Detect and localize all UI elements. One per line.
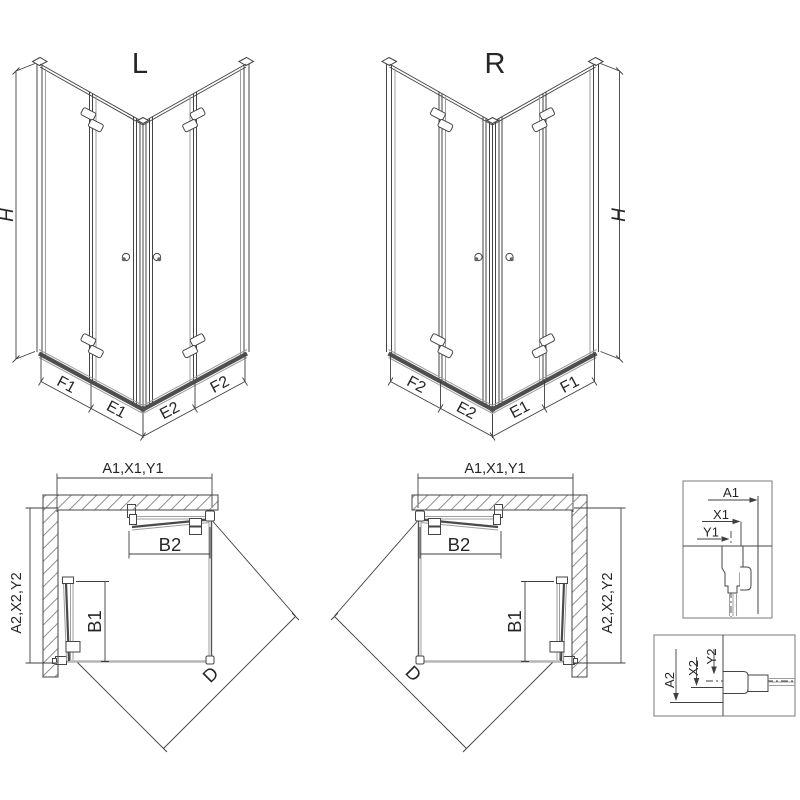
technical-drawing-canvas: L H F1 E1 E2 F2 R H F2 E2 E1 F1 A1,X1,Y1… bbox=[0, 0, 800, 800]
plan-left-side-label: A2,X2,Y2 bbox=[9, 572, 25, 633]
door-cap bbox=[63, 577, 74, 584]
d-dimension bbox=[78, 522, 300, 753]
shower-enclosure-drawing: L H F1 E1 E2 F2 R H F2 E2 E1 F1 A1,X1,Y1… bbox=[0, 0, 800, 800]
detail-x2-label: X2 bbox=[686, 660, 701, 676]
detail-box-a1x1y1 bbox=[683, 481, 772, 618]
plan-left-b2-label: B2 bbox=[159, 534, 182, 555]
detail-a1-label: A1 bbox=[723, 485, 739, 500]
corner-post-plan bbox=[206, 511, 215, 521]
door-bracket bbox=[66, 642, 80, 653]
hinge-icon bbox=[179, 107, 209, 132]
stile-cap bbox=[239, 58, 254, 66]
corner-foot bbox=[140, 406, 146, 412]
plan-right-d-label: D bbox=[401, 661, 425, 685]
hinge-icon bbox=[77, 333, 107, 358]
detail-x1-label: X1 bbox=[713, 507, 729, 522]
door-bracket bbox=[130, 515, 137, 525]
hinge-bracket bbox=[190, 527, 202, 535]
plan-left-width-label: A1,X1,Y1 bbox=[102, 461, 163, 477]
hinge-icon bbox=[179, 333, 209, 358]
hinge-bracket bbox=[190, 519, 202, 527]
door-knob-icon bbox=[122, 253, 161, 261]
plan-right-width-label: A1,X1,Y1 bbox=[464, 461, 525, 477]
plan-left-b1-label: B1 bbox=[84, 610, 105, 633]
hinge-icon bbox=[77, 107, 107, 132]
detail-a2-label: A2 bbox=[662, 672, 677, 688]
iso-left-title: L bbox=[132, 48, 148, 80]
iso-right-title: R bbox=[485, 48, 506, 80]
stile-cap bbox=[33, 58, 48, 66]
height-label-left: H bbox=[0, 208, 18, 222]
height-label-right: H bbox=[609, 208, 630, 222]
detail-y2-label: Y2 bbox=[704, 649, 719, 665]
detail-y1-label: Y1 bbox=[703, 525, 719, 540]
plan-right-b1-label: B1 bbox=[504, 610, 525, 633]
seg-label-e2: E2 bbox=[157, 399, 182, 423]
seg-label-e2r: E2 bbox=[453, 399, 478, 423]
plan-right-b2-label: B2 bbox=[448, 534, 471, 555]
plan-left-d-label: D bbox=[198, 662, 222, 686]
plan-right-side-label: A2,X2,Y2 bbox=[600, 572, 616, 633]
corner-post bbox=[140, 122, 146, 439]
plan-enclosure-right bbox=[331, 474, 578, 753]
